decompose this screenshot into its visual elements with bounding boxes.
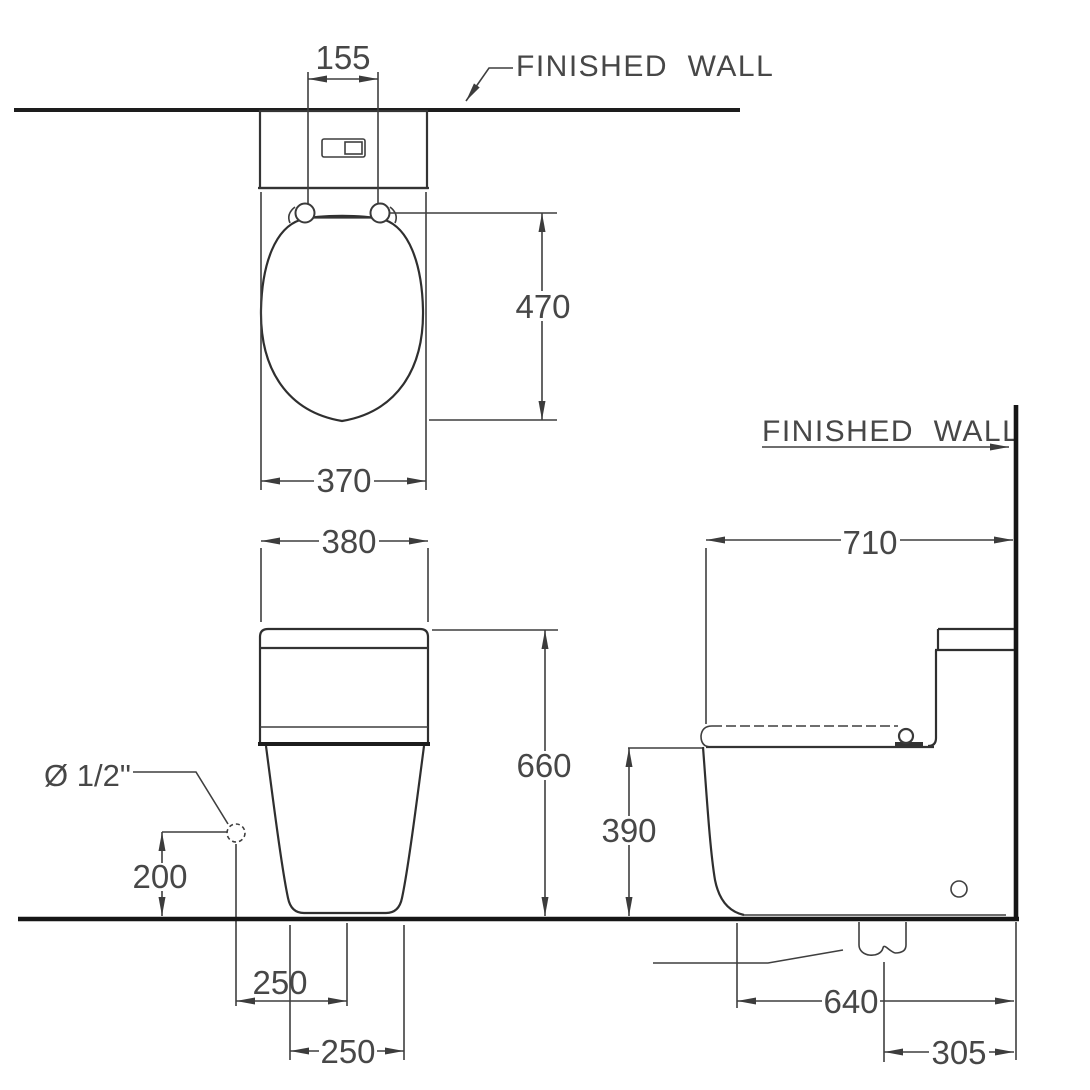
dim-470-value: 470 <box>515 288 570 325</box>
dim-640-value: 640 <box>823 983 878 1020</box>
side-seat-front-edge <box>701 726 712 747</box>
dim-710-value: 710 <box>842 524 897 561</box>
plan-wall-label: FINISHED WALL <box>516 50 774 83</box>
front-bowl-outline <box>266 746 424 913</box>
flush-button-small-key-icon <box>345 142 362 154</box>
dim-660-value: 660 <box>516 747 571 784</box>
dim-305-value: 305 <box>931 1034 986 1071</box>
technical-drawing-svg: FINISHED WALL 155 470 370 <box>0 0 1090 1090</box>
dim-370-extension-lines <box>261 192 426 490</box>
dim-155-value: 155 <box>315 39 370 76</box>
supply-inlet-icon <box>227 824 245 842</box>
side-hinge-icon <box>899 729 913 743</box>
side-fixing-hole-icon <box>951 881 967 897</box>
blueprint-canvas: FINISHED WALL 155 470 370 <box>0 0 1090 1090</box>
hinge-right-flap <box>390 207 396 223</box>
plan-view: FINISHED WALL 155 470 370 <box>14 39 774 499</box>
seat-oval-outline <box>261 216 423 421</box>
dim-390-value: 390 <box>601 812 656 849</box>
drain-pipe-break-squiggle <box>859 945 895 955</box>
side-wall-label: FINISHED WALL <box>762 415 1020 448</box>
supply-leader-line <box>133 772 228 824</box>
supply-size-label: Ø 1/2" <box>44 758 131 793</box>
drain-leader-line <box>653 950 843 963</box>
dim-200-value: 200 <box>132 858 187 895</box>
plan-wall-leader-line <box>466 68 513 101</box>
front-view: 380 660 Ø 1/2" 200 250 250 <box>44 523 574 1070</box>
dim-370-value: 370 <box>316 462 371 499</box>
dim-250b-value: 250 <box>320 1033 375 1070</box>
dim-380-value: 380 <box>321 523 376 560</box>
side-view: FINISHED WALL 710 390 <box>600 405 1020 1071</box>
side-bowl-front-outline <box>703 747 744 915</box>
plan-tank-outline <box>260 111 427 188</box>
dim-250a-value: 250 <box>252 964 307 1001</box>
side-tank-outline <box>928 629 1014 746</box>
hinge-right-icon <box>371 204 390 223</box>
hinge-left-flap <box>289 207 295 223</box>
hinge-left-icon <box>296 204 315 223</box>
